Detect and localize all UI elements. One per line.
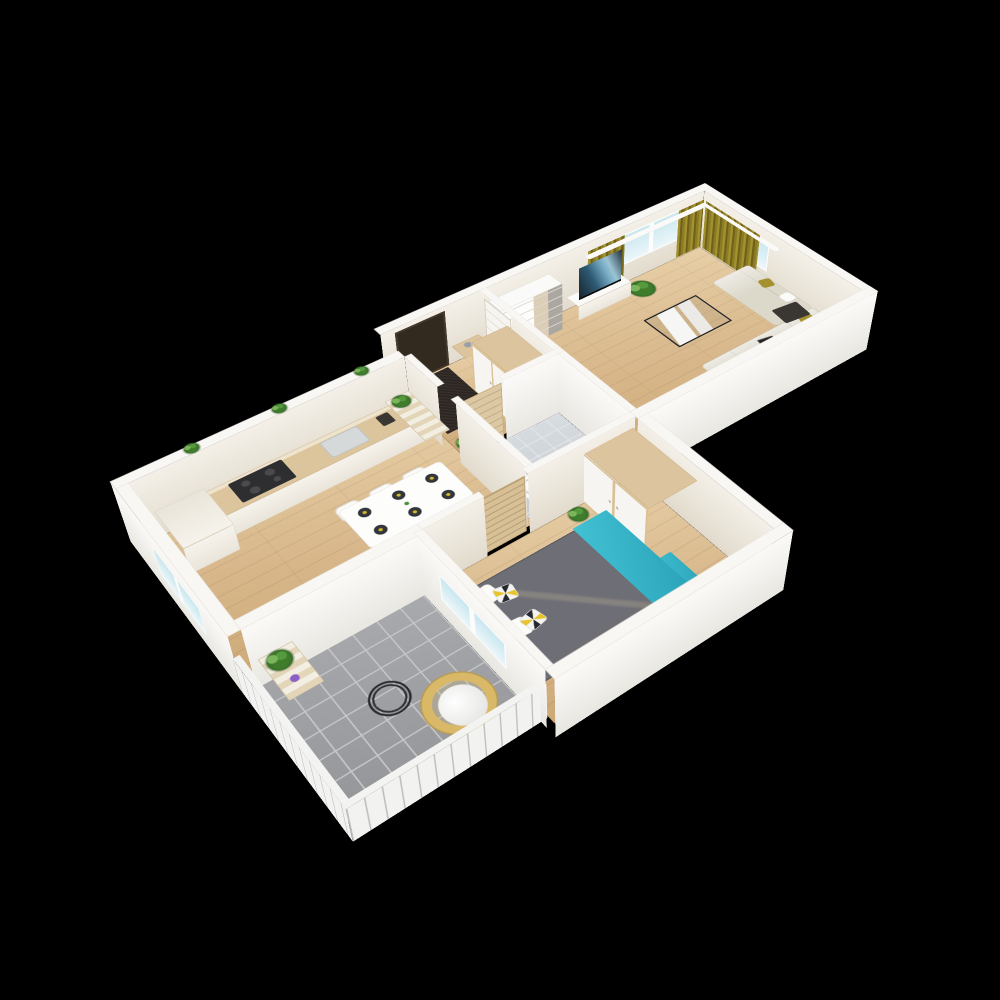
floorplan-render-canvas [0, 0, 1000, 1000]
apartment-3d-scene [110, 235, 1000, 867]
